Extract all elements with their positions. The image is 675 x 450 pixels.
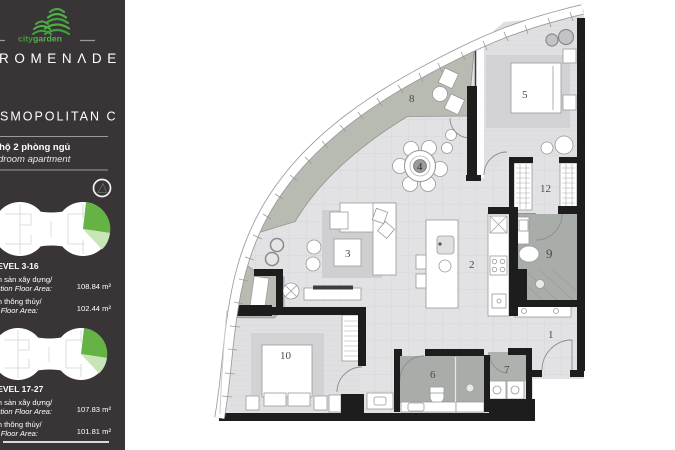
- svg-text:Diện tích sàn xây dựng/: Diện tích sàn xây dựng/: [0, 398, 53, 407]
- svg-text:6: 6: [430, 369, 436, 381]
- svg-text:4: 4: [417, 161, 423, 173]
- svg-text:Căn hộ 2 phòng ngủ: Căn hộ 2 phòng ngủ: [0, 142, 71, 153]
- svg-text:Clearance Floor Area:: Clearance Floor Area:: [0, 429, 38, 438]
- svg-text:3: 3: [345, 248, 351, 260]
- svg-text:citygarden: citygarden: [18, 34, 62, 44]
- svg-text:Clearance Floor Area:: Clearance Floor Area:: [0, 306, 38, 315]
- svg-text:5: 5: [522, 89, 528, 101]
- svg-text:Construction Floor Area:: Construction Floor Area:: [0, 407, 52, 416]
- svg-text:Construction Floor Area:: Construction Floor Area:: [0, 284, 52, 293]
- svg-text:10: 10: [280, 350, 292, 362]
- svg-text:2-bedroom apartment: 2-bedroom apartment: [0, 154, 71, 165]
- svg-text:102.44 m²: 102.44 m²: [77, 304, 112, 313]
- svg-text:107.83 m²: 107.83 m²: [77, 405, 112, 414]
- svg-text:9: 9: [546, 246, 553, 261]
- svg-text:Diện tích sàn xây dựng/: Diện tích sàn xây dựng/: [0, 275, 53, 284]
- svg-text:LEVEL 17-27: LEVEL 17-27: [0, 384, 44, 394]
- svg-text:Diện tích thông thủy/: Diện tích thông thủy/: [0, 297, 43, 306]
- svg-text:LEVEL 3-16: LEVEL 3-16: [0, 261, 39, 271]
- svg-text:2: 2: [469, 259, 475, 271]
- svg-text:ROMENΛDE: ROMENΛDE: [0, 51, 122, 66]
- svg-text:Diện tích thông thủy/: Diện tích thông thủy/: [0, 420, 43, 429]
- svg-text:7: 7: [504, 364, 510, 376]
- svg-text:108.84 m²: 108.84 m²: [77, 282, 112, 291]
- svg-text:SMOPOLITAN C: SMOPOLITAN C: [0, 110, 118, 124]
- svg-text:8: 8: [409, 93, 415, 105]
- svg-text:1: 1: [548, 329, 554, 341]
- svg-text:101.81 m²: 101.81 m²: [77, 427, 112, 436]
- svg-text:12: 12: [540, 183, 551, 195]
